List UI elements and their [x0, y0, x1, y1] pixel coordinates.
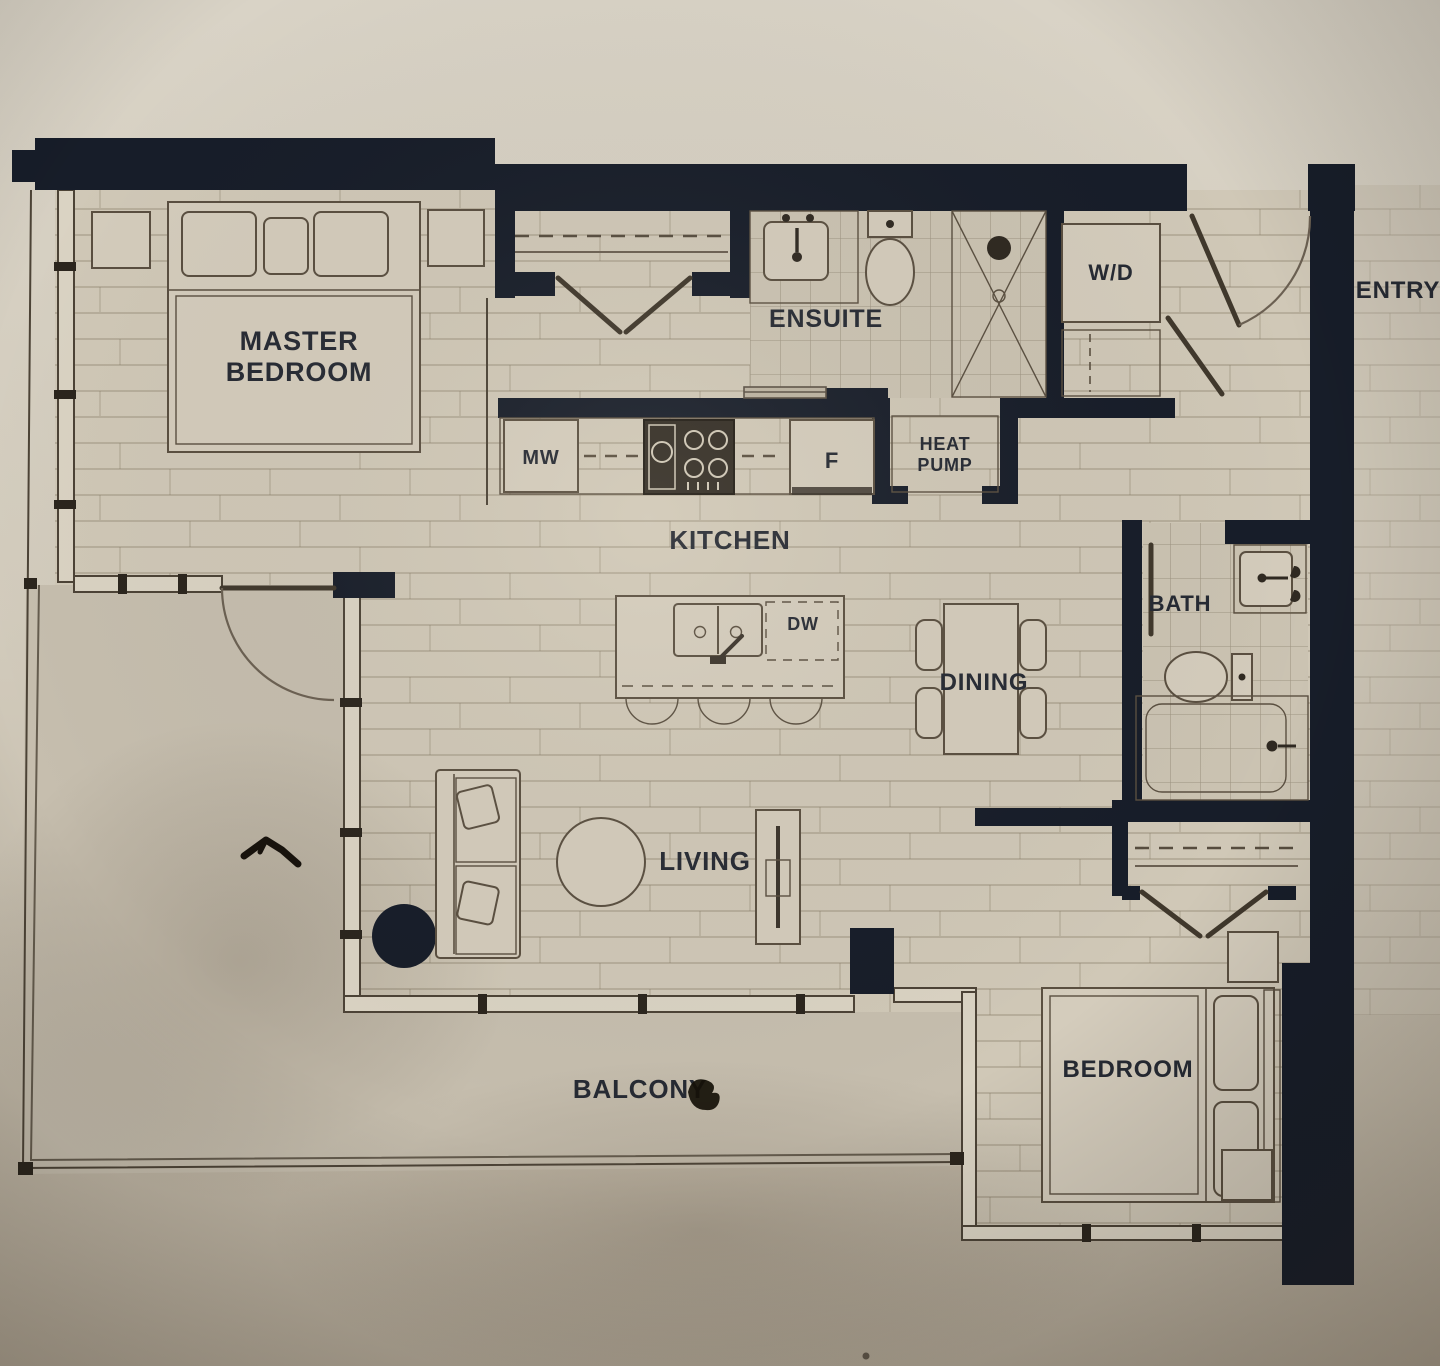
floor-plan-svg: MASTER BEDROOM ENSUITE W/D ENTRY MW F HE… — [0, 0, 1440, 1366]
photo-vignette — [0, 0, 1440, 1366]
floor-plan-photo: MASTER BEDROOM ENSUITE W/D ENTRY MW F HE… — [0, 0, 1440, 1366]
